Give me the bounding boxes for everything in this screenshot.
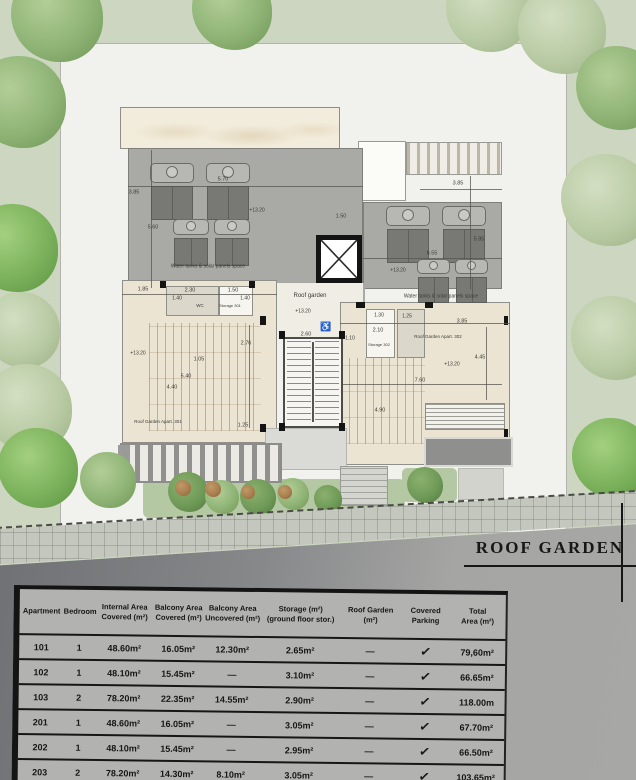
wall-section: [504, 429, 508, 437]
table-header-cell: Balcony AreaUncovered (m²): [204, 604, 262, 624]
water-tank-icon: [186, 221, 196, 231]
table-cell-storage: 3.05m²: [260, 720, 338, 731]
table-cell-balcony_uncovered: —: [203, 669, 261, 680]
dimension-label: +13.20: [295, 310, 310, 315]
table-cell-parking: ✓: [401, 668, 449, 685]
dimension-label: +13.20: [390, 269, 405, 274]
roof-garden-plan-sheet: Water tanks & solar panels spaceWater ta…: [0, 0, 636, 780]
stair-direction-arrow: ↑: [311, 349, 315, 356]
areas-table: ApartmentBedroomInternal AreaCovered (m²…: [11, 585, 508, 780]
checkmark-icon: ✓: [418, 668, 431, 685]
tree-icon: [0, 292, 60, 368]
dimension-label: 5.60: [148, 225, 159, 231]
tree-icon: [175, 480, 191, 496]
dimension-label: 3.85: [457, 319, 468, 325]
table-cell-parking: ✓: [401, 693, 449, 710]
checkmark-icon: ✓: [417, 743, 430, 760]
table-header-cell: CoveredParking: [402, 606, 450, 626]
tree-icon: [561, 154, 636, 246]
pv-divider: [191, 239, 192, 265]
dimension-line: [363, 258, 502, 259]
dimension-line: [340, 323, 510, 324]
deck-301: [149, 323, 261, 431]
wall-section: [425, 302, 433, 308]
table-cell-apartment: 101: [19, 642, 63, 653]
paved-patch: [458, 468, 504, 500]
dimension-label: Storage 301: [219, 304, 241, 308]
roof-block: [358, 141, 406, 201]
dimension-label: 5.95: [474, 237, 485, 243]
dimension-label: 3.85: [453, 181, 464, 187]
dimension-label: +13.20: [249, 209, 264, 214]
checkmark-icon: ✓: [418, 718, 431, 735]
wall-section: [260, 316, 266, 325]
dimension-line: [342, 384, 502, 385]
tree-icon: [80, 452, 136, 508]
dimension-line: [470, 176, 471, 289]
dimension-label: 2.10: [373, 328, 384, 334]
dimension-label: 1.50: [336, 214, 347, 220]
dimension-label: 5.70: [218, 177, 229, 183]
table-cell-parking: ✓: [400, 743, 448, 760]
table-header-cell: Storage (m²)(ground floor stor.): [262, 604, 340, 624]
table-cell-balcony_covered: 15.45m²: [153, 668, 203, 679]
table-header-cell: Bedroom: [64, 607, 96, 617]
dimension-label: 7.60: [415, 378, 426, 384]
dimension-label: 2.30: [185, 288, 196, 294]
dimension-label: 5.40: [181, 374, 192, 380]
tree-icon: [572, 418, 636, 498]
sheet-title: ROOF GARDEN: [470, 538, 630, 558]
dimension-line: [486, 327, 487, 400]
terrace-steps: [425, 403, 505, 430]
dimension-label: Water tanks & solar panels space: [404, 295, 478, 300]
elevator-x-icon: [321, 240, 357, 278]
table-cell-balcony_uncovered: 14.55m²: [203, 694, 261, 705]
dimension-line: [128, 186, 363, 187]
tree-icon: [0, 428, 78, 508]
table-header-cell: Apartment: [20, 606, 64, 616]
table-cell-balcony_covered: 22.35m²: [153, 693, 203, 704]
table-cell-internal: 78.20m²: [95, 692, 153, 703]
table-cell-balcony_covered: 16.05m²: [152, 718, 202, 729]
dimension-label: 1.50: [228, 288, 239, 294]
wall-section: [356, 302, 365, 308]
table-header-cell: TotalArea (m²): [450, 607, 506, 627]
tree-icon: [278, 485, 292, 499]
stair-flight: [287, 341, 311, 423]
ramp-block: [424, 437, 513, 467]
checkmark-icon: ✓: [417, 768, 430, 780]
roof-garden-label: Roof garden: [293, 293, 326, 299]
water-tank-icon: [227, 221, 237, 231]
table-cell-roof_garden: —: [339, 695, 401, 706]
table-cell-balcony_covered: 14.30m²: [152, 768, 202, 779]
water-tank-icon: [402, 209, 414, 221]
table-cell-roof_garden: —: [339, 645, 401, 656]
table-cell-bedroom: 1: [62, 717, 94, 727]
dimension-label: 6.55: [427, 251, 438, 257]
table-cell-storage: 2.90m²: [261, 695, 339, 706]
dimension-label: 1.40: [240, 297, 250, 302]
dimension-label: 1.25: [402, 315, 412, 320]
table-cell-parking: ✓: [400, 718, 448, 735]
pv-panel: [215, 238, 249, 266]
pv-panel: [174, 238, 208, 266]
dimension-label: Storage 302: [368, 343, 390, 347]
dimension-label: 1.40: [172, 297, 182, 302]
elevator-shaft: [316, 235, 362, 283]
water-tank-icon: [458, 209, 470, 221]
water-tank-icon: [166, 166, 178, 178]
table-cell-roof_garden: —: [339, 670, 401, 681]
header-line: Covered (m²): [154, 613, 204, 623]
table-cell-internal: 48.60m²: [94, 717, 152, 728]
dimension-label: +13.20: [130, 352, 145, 357]
table-cell-internal: 48.10m²: [94, 742, 152, 753]
apartment-302-label: Roof Garden Apart. 302: [414, 335, 462, 340]
tree-icon: [205, 481, 221, 497]
tree-icon: [571, 296, 636, 380]
dimension-line: [122, 294, 277, 295]
table-body: 101148.60m²16.05m²12.30m²2.65m²—✓79,60m²…: [17, 635, 505, 780]
dimension-label: 2.76: [241, 341, 252, 347]
water-tank-icon: [467, 261, 476, 270]
header-line: Parking: [402, 616, 450, 626]
pergola-top: [406, 142, 502, 175]
dimension-label: 4.40: [167, 385, 178, 391]
table-cell-total: 79,60m²: [449, 647, 505, 658]
dimension-label: 1.25: [238, 423, 249, 429]
header-line: (ground floor stor.): [262, 614, 340, 625]
tree-icon: [0, 204, 58, 292]
dimension-label: 1.05: [194, 357, 205, 363]
pv-panel: [207, 186, 249, 220]
table-cell-internal: 48.10m²: [95, 667, 153, 678]
table-cell-bedroom: 1: [63, 642, 95, 652]
wall-section: [279, 331, 285, 339]
table-cell-balcony_uncovered: 8.10m²: [202, 769, 260, 780]
header-line: Covered (m²): [96, 612, 154, 622]
pv-divider: [228, 187, 229, 219]
dimension-line: [420, 189, 502, 190]
table-cell-total: 118.00m: [449, 697, 505, 708]
table-cell-balcony_covered: 15.45m²: [152, 743, 202, 754]
tree-icon: [0, 56, 66, 148]
tree-icon: [576, 46, 636, 130]
table-header-cell: Internal AreaCovered (m²): [96, 602, 154, 622]
table-cell-parking: ✓: [400, 768, 448, 780]
wall-section: [249, 281, 255, 288]
table-cell-balcony_uncovered: 12.30m²: [203, 644, 261, 655]
pv-divider: [172, 187, 173, 219]
dimension-label: Water tanks & solar panels space: [171, 265, 245, 270]
table-cell-storage: 2.65m²: [261, 645, 339, 656]
table-cell-balcony_covered: 16.05m²: [153, 643, 203, 654]
apartment-301-label: Roof Garden Apart. 301: [134, 420, 182, 425]
dimension-label: 1.85: [138, 287, 149, 293]
table-cell-bedroom: 2: [62, 767, 94, 777]
deck-302: [341, 358, 425, 444]
table-cell-internal: 48.60m²: [95, 642, 153, 653]
lower-roof-terrace: [120, 107, 340, 149]
header-line: (m²): [340, 615, 402, 626]
table-cell-apartment: 103: [19, 692, 63, 703]
header-line: Uncovered (m²): [204, 613, 262, 623]
table-cell-total: 66.50m²: [448, 747, 504, 758]
dimension-label: 2.60: [301, 332, 312, 338]
table-header-row: ApartmentBedroomInternal AreaCovered (m²…: [19, 589, 506, 641]
header-line: Bedroom: [64, 607, 96, 617]
title-underline: [464, 565, 636, 567]
checkmark-icon: ✓: [418, 693, 431, 710]
pv-divider: [232, 239, 233, 265]
table-cell-apartment: 201: [18, 717, 62, 728]
dimension-label: 3.85: [129, 190, 140, 196]
header-line: Roof Garden: [340, 605, 402, 616]
table-cell-roof_garden: —: [338, 745, 400, 756]
dimension-label: 1.10: [345, 337, 355, 342]
dimension-label: +13.20: [444, 363, 459, 368]
table-header-cell: Balcony AreaCovered (m²): [154, 603, 204, 623]
table-cell-total: 103.65m²: [448, 772, 504, 780]
table-cell-bedroom: 2: [63, 692, 95, 702]
outdoor-steps: [340, 466, 388, 506]
table-cell-storage: 2.95m²: [260, 745, 338, 756]
wall-section: [160, 281, 166, 288]
table-cell-apartment: 203: [18, 767, 62, 778]
tree-icon: [241, 485, 255, 499]
table-cell-total: 67.70m²: [448, 722, 504, 733]
table-cell-bedroom: 1: [62, 742, 94, 752]
dimension-label: 4.45: [475, 355, 486, 361]
table-cell-total: 66.65m²: [449, 672, 505, 683]
table-header-cell: Roof Garden(m²): [340, 605, 402, 625]
table-cell-internal: 78.20m²: [94, 767, 152, 778]
dimension-line: [151, 150, 152, 288]
stair-flight: [315, 341, 339, 423]
dimension-label: 4.90: [375, 408, 386, 414]
table-cell-roof_garden: —: [338, 720, 400, 731]
checkmark-icon: ✓: [419, 643, 432, 660]
wall-section: [279, 423, 285, 431]
wall-section: [339, 423, 345, 431]
table-cell-storage: 3.05m²: [260, 770, 338, 780]
header-line: Area (m²): [450, 616, 506, 626]
table-cell-apartment: 202: [18, 742, 62, 753]
water-tank-icon: [429, 261, 438, 270]
wall-section: [260, 424, 266, 432]
pv-panel: [151, 186, 193, 220]
table-cell-apartment: 102: [19, 667, 63, 678]
table-cell-bedroom: 1: [63, 667, 95, 677]
header-line: Apartment: [20, 606, 64, 616]
table-cell-balcony_uncovered: —: [202, 719, 260, 730]
wheelchair-icon: ♿: [320, 323, 331, 332]
table-cell-balcony_uncovered: —: [202, 744, 260, 755]
dimension-label: WC: [196, 304, 204, 309]
header-line: Covered: [402, 606, 450, 616]
title-border-line: [621, 503, 623, 602]
table-cell-parking: ✓: [401, 643, 449, 660]
wall-section: [339, 331, 345, 339]
table-cell-roof_garden: —: [338, 770, 400, 780]
tree-icon: [407, 467, 443, 503]
table-cell-storage: 3.10m²: [261, 670, 339, 681]
header-line: Balcony Area: [154, 603, 204, 613]
dimension-label: 1.30: [374, 314, 384, 319]
